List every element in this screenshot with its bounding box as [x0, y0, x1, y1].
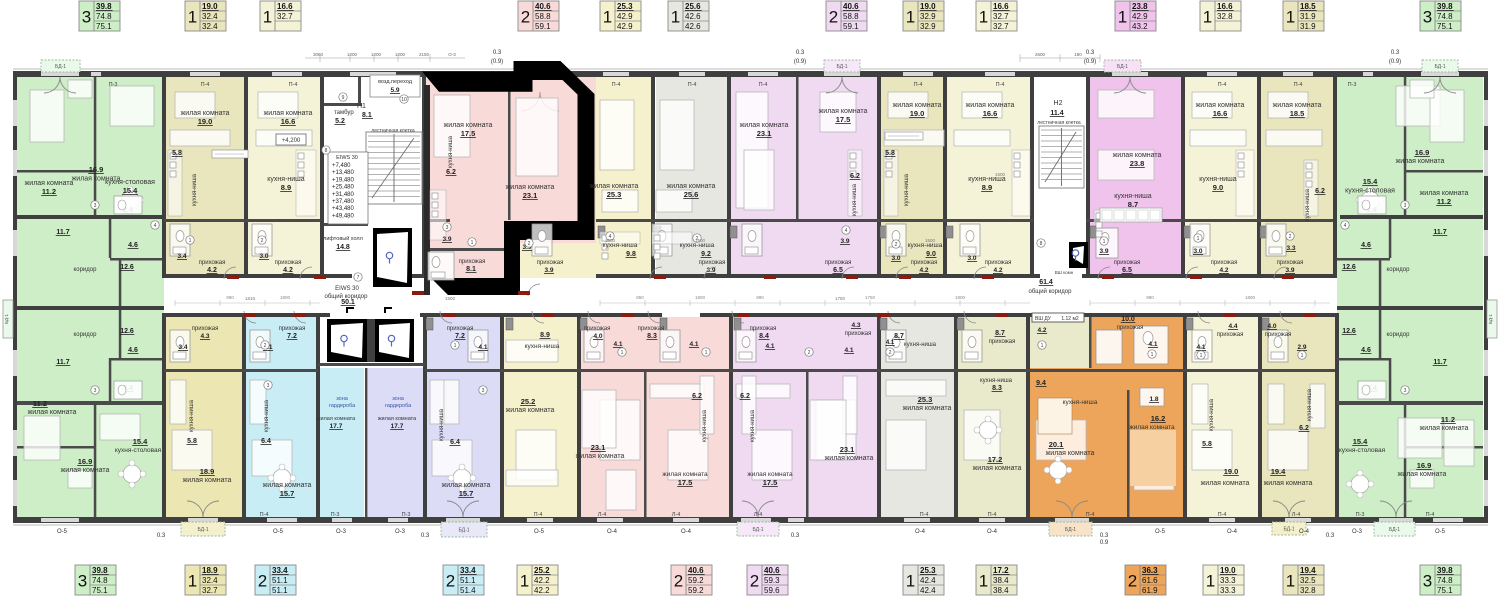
svg-text:19.0: 19.0 [1224, 467, 1239, 476]
svg-text:жилая комната: жилая комната [1420, 425, 1469, 432]
svg-text:0.3: 0.3 [796, 50, 805, 56]
svg-text:4.1: 4.1 [689, 341, 698, 348]
svg-text:прихожая: прихожая [911, 260, 938, 266]
svg-text:33.3: 33.3 [1220, 576, 1236, 585]
svg-text:прихожая: прихожая [1277, 260, 1304, 266]
svg-text:32.8: 32.8 [1217, 12, 1233, 21]
svg-text:Л-4: Л-4 [672, 512, 681, 518]
svg-text:8.9: 8.9 [982, 183, 992, 192]
svg-text:23.1: 23.1 [523, 191, 538, 200]
svg-text:3.0: 3.0 [891, 255, 900, 262]
svg-text:лестничная клетка: лестничная клетка [1037, 120, 1081, 126]
svg-text:59.2: 59.2 [688, 576, 704, 585]
svg-text:1800: 1800 [695, 295, 706, 300]
svg-text:жилая комната: жилая комната [667, 183, 716, 190]
svg-text:18.9: 18.9 [202, 566, 218, 575]
svg-text:прихожая: прихожая [989, 339, 1016, 345]
svg-text:П-4: П-4 [920, 512, 929, 518]
svg-text:16.9: 16.9 [1417, 461, 1432, 470]
svg-text:11.4: 11.4 [1050, 110, 1063, 117]
svg-text:6.4: 6.4 [450, 439, 460, 446]
svg-text:кухня-ниша: кухня-ниша [908, 242, 943, 249]
svg-text:8.3: 8.3 [647, 333, 657, 340]
svg-text:жилая комната: жилая комната [317, 416, 356, 422]
svg-text:11.7: 11.7 [1433, 359, 1446, 366]
svg-text:2: 2 [674, 572, 683, 591]
svg-text:8.1: 8.1 [466, 266, 476, 273]
svg-text:П-3: П-3 [402, 512, 411, 518]
svg-text:1750: 1750 [835, 296, 846, 301]
svg-text:ВШ ДУ: ВШ ДУ [1035, 316, 1052, 322]
svg-text:жилая комната: жилая комната [444, 122, 493, 129]
svg-text:О-3: О-3 [395, 529, 406, 535]
svg-text:жилая комната: жилая комната [819, 108, 868, 115]
svg-text:39.8: 39.8 [92, 566, 108, 575]
svg-text:2: 2 [528, 241, 531, 247]
svg-text:40.6: 40.6 [764, 566, 780, 575]
svg-text:жилая комната: жилая комната [966, 102, 1015, 109]
svg-text:общий коридор: общий коридор [1029, 288, 1073, 295]
svg-text:16.6: 16.6 [1213, 109, 1228, 118]
svg-text:1: 1 [979, 8, 988, 27]
svg-text:19.4: 19.4 [1300, 566, 1316, 575]
svg-text:0.3: 0.3 [157, 533, 166, 539]
svg-text:БД-1: БД-1 [458, 528, 469, 534]
svg-text:5.8: 5.8 [1202, 441, 1212, 448]
svg-text:кухня-ниша: кухня-ниша [603, 242, 638, 249]
svg-text:О-4: О-4 [681, 529, 692, 535]
svg-text:2: 2 [1289, 234, 1292, 240]
svg-text:0.3: 0.3 [1391, 50, 1400, 56]
svg-text:Л-4: Л-4 [754, 512, 763, 518]
svg-text:75.1: 75.1 [1437, 22, 1453, 31]
svg-text:0.3: 0.3 [493, 50, 502, 56]
svg-text:5.8: 5.8 [187, 438, 197, 445]
svg-text:1: 1 [621, 350, 624, 356]
svg-text:4.1: 4.1 [478, 344, 487, 351]
svg-text:БД-1: БД-1 [1283, 527, 1294, 533]
svg-text:П-3: П-3 [331, 512, 340, 518]
svg-text:42.9: 42.9 [1132, 12, 1148, 21]
svg-text:жилая комната: жилая комната [1398, 471, 1447, 478]
svg-text:8: 8 [1040, 241, 1043, 247]
svg-text:П-4: П-4 [260, 512, 269, 518]
svg-text:59.1: 59.1 [843, 22, 859, 31]
svg-text:П-4: П-4 [1086, 512, 1095, 518]
svg-text:15.7: 15.7 [280, 489, 295, 498]
svg-text:прихожая: прихожая [275, 260, 302, 266]
svg-text:лифтовый холл: лифтовый холл [323, 235, 363, 242]
svg-text:жилая комната: жилая комната [28, 409, 77, 416]
svg-text:2600: 2600 [1035, 52, 1046, 57]
svg-text:4.6: 4.6 [1361, 347, 1371, 354]
svg-text:23.1: 23.1 [840, 445, 855, 454]
svg-text:33.4: 33.4 [460, 566, 476, 575]
svg-text:жилая комната: жилая комната [442, 482, 491, 489]
svg-text:кухня-ниша: кухня-ниша [448, 135, 454, 168]
svg-text:кухня-ниша: кухня-ниша [192, 173, 198, 206]
svg-text:59.3: 59.3 [764, 576, 780, 585]
svg-text:16.6: 16.6 [277, 2, 293, 11]
svg-text:кухня-ниша: кухня-ниша [1305, 188, 1311, 221]
svg-text:4.2: 4.2 [919, 267, 928, 274]
svg-text:3: 3 [1423, 8, 1432, 27]
svg-text:25.6: 25.6 [685, 2, 701, 11]
svg-text:17.5: 17.5 [678, 478, 693, 487]
svg-text:10.0: 10.0 [1121, 316, 1135, 323]
svg-text:4: 4 [154, 223, 157, 229]
svg-text:3.0: 3.0 [967, 255, 976, 262]
svg-text:прихожая: прихожая [1217, 332, 1244, 338]
svg-text:3.9: 3.9 [1285, 267, 1294, 274]
svg-text:6.5: 6.5 [833, 267, 843, 274]
svg-text:1: 1 [454, 343, 457, 349]
svg-text:П-4: П-4 [688, 82, 697, 88]
svg-text:4.6: 4.6 [128, 347, 138, 354]
svg-text:75.1: 75.1 [92, 586, 108, 595]
svg-text:1800: 1800 [955, 295, 966, 300]
svg-text:прихожая: прихожая [1265, 332, 1292, 338]
svg-text:9.2: 9.2 [701, 251, 711, 258]
svg-text:БД-1: БД-1 [4, 314, 9, 324]
svg-text:зона: зона [336, 396, 349, 402]
svg-text:БД-1: БД-1 [1065, 527, 1076, 533]
svg-text:1: 1 [1041, 343, 1044, 349]
svg-text:12.6: 12.6 [1342, 328, 1356, 335]
svg-text:1: 1 [1286, 8, 1295, 27]
svg-text:П-4: П-4 [996, 82, 1005, 88]
svg-text:1200: 1200 [371, 52, 382, 57]
svg-text:кухня-ниша: кухня-ниша [702, 409, 708, 442]
svg-text:19.0: 19.0 [202, 2, 218, 11]
svg-text:10: 10 [401, 97, 407, 103]
svg-text:EIWS 30: EIWS 30 [336, 155, 358, 161]
svg-text:+49,480: +49,480 [332, 213, 355, 219]
svg-text:3: 3 [267, 383, 270, 389]
svg-text:75.1: 75.1 [1437, 586, 1453, 595]
svg-text:16.9: 16.9 [78, 457, 93, 466]
svg-text:4.1: 4.1 [613, 341, 622, 348]
svg-text:П-4: П-4 [988, 512, 997, 518]
svg-text:жилая комната: жилая комната [740, 122, 789, 129]
svg-text:58.8: 58.8 [843, 12, 859, 21]
svg-text:лестничная клетка: лестничная клетка [371, 128, 415, 134]
svg-text:кухня-ниша: кухня-ниша [980, 378, 1013, 384]
svg-text:74.8: 74.8 [92, 576, 108, 585]
svg-text:П-4: П-4 [1218, 82, 1227, 88]
svg-text:1: 1 [263, 8, 272, 27]
svg-text:П-4: П-4 [1426, 512, 1435, 518]
svg-text:+7,480: +7,480 [332, 163, 351, 169]
svg-text:3.9: 3.9 [1099, 248, 1108, 255]
svg-text:19.0: 19.0 [198, 117, 213, 126]
svg-text:1: 1 [1206, 572, 1215, 591]
svg-text:4.2: 4.2 [283, 267, 293, 274]
svg-text:жилая комната: жилая комната [1273, 102, 1322, 109]
svg-text:19.0: 19.0 [920, 2, 936, 11]
svg-text:17.5: 17.5 [763, 478, 778, 487]
svg-text:32.4: 32.4 [202, 576, 218, 585]
svg-text:тамбур: тамбур [334, 110, 354, 116]
svg-text:16.9: 16.9 [1415, 148, 1430, 157]
svg-text:6.2: 6.2 [740, 393, 750, 400]
svg-text:3: 3 [482, 388, 485, 394]
svg-text:БД-1: БД-1 [1389, 527, 1400, 533]
svg-text:11.2: 11.2 [1437, 197, 1451, 206]
svg-text:4.1: 4.1 [1148, 341, 1157, 348]
svg-text:1: 1 [1203, 8, 1212, 27]
svg-text:50.1: 50.1 [341, 299, 355, 306]
svg-text:59.2: 59.2 [688, 586, 704, 595]
svg-text:П-4: П-4 [612, 82, 621, 88]
svg-text:25.2: 25.2 [534, 566, 550, 575]
svg-text:жилая комната: жилая комната [825, 455, 874, 462]
svg-text:кухня-ниша: кухня-ниша [1307, 388, 1313, 421]
svg-text:О-3: О-3 [448, 52, 456, 57]
svg-text:51.1: 51.1 [460, 576, 476, 585]
svg-text:2: 2 [258, 572, 267, 591]
svg-text:3.4: 3.4 [178, 344, 187, 351]
svg-text:кухня-ниша: кухня-ниша [525, 343, 560, 350]
svg-text:П-4: П-4 [201, 82, 210, 88]
svg-text:1: 1 [705, 350, 708, 356]
svg-text:17.5: 17.5 [461, 129, 476, 138]
svg-text:51.4: 51.4 [460, 586, 476, 595]
svg-text:О-3: О-3 [1352, 529, 1363, 535]
svg-text:прихожая: прихожая [584, 326, 611, 332]
svg-text:18.5: 18.5 [1290, 109, 1305, 118]
svg-text:кухня-столовая: кухня-столовая [115, 447, 162, 454]
svg-text:возд.переход: возд.переход [378, 79, 413, 85]
svg-text:40.6: 40.6 [688, 566, 704, 575]
svg-text:БД-1: БД-1 [752, 527, 763, 533]
svg-text:32.7: 32.7 [277, 12, 293, 21]
svg-text:1: 1 [1151, 352, 1154, 358]
svg-text:жилая комната: жилая комната [264, 110, 313, 117]
svg-text:4: 4 [845, 228, 848, 234]
svg-text:зона: зона [392, 396, 405, 402]
svg-text:прихожая: прихожая [1114, 260, 1141, 266]
svg-text:+4,200: +4,200 [282, 138, 301, 144]
svg-text:4.0: 4.0 [593, 333, 602, 340]
svg-text:990: 990 [226, 295, 234, 300]
svg-text:жилая комната: жилая комната [1201, 480, 1250, 487]
svg-text:6.2: 6.2 [1299, 425, 1309, 432]
svg-text:жилая комната: жилая комната [662, 471, 708, 478]
svg-text:25.2: 25.2 [521, 397, 536, 406]
svg-text:23.8: 23.8 [1132, 2, 1148, 11]
svg-text:990: 990 [756, 295, 764, 300]
svg-text:16.9: 16.9 [89, 165, 104, 174]
svg-text:П-3: П-3 [1348, 82, 1357, 88]
svg-text:59.1: 59.1 [535, 22, 551, 31]
svg-text:4.3: 4.3 [200, 333, 209, 340]
svg-text:8.1: 8.1 [362, 112, 372, 119]
svg-text:3: 3 [78, 572, 87, 591]
svg-text:О-5: О-5 [534, 529, 545, 535]
svg-text:40.6: 40.6 [843, 2, 859, 11]
svg-text:П-4: П-4 [1294, 82, 1303, 88]
svg-text:коридор: коридор [1387, 332, 1411, 338]
svg-text:42.9: 42.9 [617, 12, 633, 21]
svg-text:17.7: 17.7 [330, 423, 343, 430]
svg-text:1800: 1800 [280, 295, 291, 300]
svg-text:25.3: 25.3 [607, 190, 622, 199]
svg-text:прихожая: прихожая [750, 326, 777, 332]
svg-text:42.2: 42.2 [534, 576, 550, 585]
svg-text:42.4: 42.4 [920, 586, 936, 595]
svg-text:(0.9): (0.9) [1084, 59, 1096, 65]
svg-text:1: 1 [906, 8, 915, 27]
svg-text:11.2: 11.2 [33, 399, 47, 408]
svg-text:П-3: П-3 [1356, 512, 1365, 518]
svg-text:(0.9): (0.9) [794, 59, 806, 65]
svg-text:51.1: 51.1 [272, 576, 288, 585]
svg-text:6.4: 6.4 [261, 438, 271, 445]
svg-text:2: 2 [895, 242, 898, 248]
svg-text:23.1: 23.1 [757, 129, 772, 138]
svg-text:жилая комната: жилая комната [183, 477, 232, 484]
svg-text:П-4: П-4 [914, 82, 923, 88]
svg-text:61.6: 61.6 [1142, 576, 1158, 585]
svg-text:6.5: 6.5 [1122, 267, 1132, 274]
svg-text:16.6: 16.6 [993, 2, 1009, 11]
svg-text:32.7: 32.7 [202, 586, 218, 595]
svg-text:3.0: 3.0 [1193, 248, 1202, 255]
svg-text:жилая комната: жилая комната [973, 465, 1022, 472]
svg-text:жилая комната: жилая комната [1420, 190, 1469, 197]
svg-text:О-5: О-5 [273, 529, 284, 535]
svg-text:17.7: 17.7 [391, 423, 404, 430]
svg-text:4: 4 [1344, 223, 1347, 229]
svg-text:74.8: 74.8 [1437, 12, 1453, 21]
svg-text:2: 2 [261, 238, 264, 244]
svg-text:1500: 1500 [995, 172, 1006, 177]
svg-text:жилая комната: жилая комната [378, 416, 417, 422]
svg-text:П-3: П-3 [109, 82, 118, 88]
svg-text:+43,480: +43,480 [332, 206, 355, 212]
svg-text:1.12 м2: 1.12 м2 [1061, 316, 1079, 322]
svg-text:(0.9): (0.9) [1389, 59, 1401, 65]
svg-text:(0.9): (0.9) [491, 59, 503, 65]
svg-text:3: 3 [82, 8, 91, 27]
svg-text:жилая комната: жилая комната [1113, 152, 1162, 159]
svg-text:О-4: О-4 [607, 529, 618, 535]
svg-text:прихожая: прихожая [1117, 325, 1144, 331]
svg-text:+37,480: +37,480 [332, 199, 355, 205]
svg-text:Л-4: Л-4 [598, 512, 607, 518]
svg-text:42.9: 42.9 [617, 22, 633, 31]
svg-text:кухня-ниша: кухня-ниша [750, 409, 756, 442]
svg-text:жилая комната: жилая комната [903, 405, 952, 412]
svg-text:кухня-ниша: кухня-ниша [189, 399, 195, 432]
svg-text:4.1: 4.1 [1196, 344, 1205, 351]
svg-text:33.3: 33.3 [1220, 586, 1236, 595]
svg-text:59.6: 59.6 [764, 586, 780, 595]
svg-text:3: 3 [1423, 572, 1432, 591]
svg-text:кухня-ниша: кухня-ниша [439, 408, 445, 441]
svg-text:2: 2 [829, 8, 838, 27]
svg-text:19.0: 19.0 [910, 109, 925, 118]
svg-text:жилая комната: жилая комната [1046, 450, 1095, 457]
svg-text:1: 1 [188, 572, 197, 591]
svg-text:0.9: 0.9 [1100, 540, 1109, 546]
svg-text:БД-1: БД-1 [197, 527, 208, 533]
svg-text:16.2: 16.2 [1151, 414, 1166, 423]
svg-text:9.8: 9.8 [626, 251, 636, 258]
svg-text:31.9: 31.9 [1300, 22, 1316, 31]
svg-text:5.2: 5.2 [335, 118, 345, 125]
svg-text:2: 2 [808, 350, 811, 356]
svg-text:12.6: 12.6 [1342, 264, 1356, 271]
svg-text:3: 3 [94, 388, 97, 394]
svg-text:3.3: 3.3 [1286, 245, 1295, 252]
svg-text:П-4: П-4 [759, 82, 768, 88]
svg-text:14.8: 14.8 [336, 244, 350, 251]
svg-text:11.7: 11.7 [56, 359, 69, 366]
svg-text:О-4: О-4 [987, 529, 998, 535]
svg-text:прихожая: прихожая [537, 260, 564, 266]
svg-text:0.3: 0.3 [1086, 50, 1095, 56]
svg-text:6.2: 6.2 [850, 173, 860, 180]
svg-text:4.2: 4.2 [1219, 267, 1228, 274]
svg-text:42.6: 42.6 [685, 12, 701, 21]
svg-text:жилая комната: жилая комната [1196, 102, 1245, 109]
svg-text:4.4: 4.4 [1228, 323, 1237, 330]
svg-text:1: 1 [1118, 8, 1127, 27]
svg-text:15.4: 15.4 [1353, 437, 1368, 446]
svg-text:жилая комната: жилая комната [506, 184, 555, 191]
svg-text:31.9: 31.9 [1300, 12, 1316, 21]
svg-text:прихожая: прихожая [825, 260, 852, 266]
svg-text:3.9: 3.9 [442, 236, 451, 243]
svg-text:1: 1 [1200, 353, 1203, 359]
svg-text:32.4: 32.4 [202, 12, 218, 21]
svg-text:43.2: 43.2 [1132, 22, 1148, 31]
svg-text:кухня-ниша: кухня-ниша [904, 342, 937, 348]
svg-text:ВШ комн: ВШ комн [1055, 270, 1074, 275]
svg-text:жилая комната: жилая комната [1129, 424, 1175, 431]
svg-text:БД-1: БД-1 [836, 64, 847, 70]
svg-text:4.6: 4.6 [128, 242, 138, 249]
svg-text:17.2: 17.2 [988, 455, 1003, 464]
svg-text:23.1: 23.1 [591, 443, 606, 452]
svg-text:32.7: 32.7 [993, 12, 1009, 21]
svg-text:1: 1 [1286, 572, 1295, 591]
svg-text:25.3: 25.3 [918, 395, 933, 404]
svg-text:25.3: 25.3 [920, 566, 936, 575]
svg-text:П-4: П-4 [534, 512, 543, 518]
svg-text:1: 1 [520, 572, 529, 591]
svg-text:2: 2 [889, 350, 892, 356]
svg-text:1800: 1800 [1245, 295, 1256, 300]
svg-text:EIWS 30: EIWS 30 [335, 286, 359, 292]
svg-text:1: 1 [906, 572, 915, 591]
svg-text:Л-4: Л-4 [1292, 512, 1301, 518]
svg-text:прихожая: прихожая [699, 260, 726, 266]
svg-text:О-5: О-5 [1155, 529, 1166, 535]
svg-text:1: 1 [1197, 236, 1200, 242]
svg-text:1.8: 1.8 [1149, 396, 1158, 403]
svg-text:прихожая: прихожая [985, 260, 1012, 266]
svg-text:4.2: 4.2 [993, 267, 1002, 274]
svg-text:прихожая: прихожая [1211, 260, 1238, 266]
svg-text:25.3: 25.3 [617, 2, 633, 11]
svg-text:H1: H1 [357, 103, 366, 110]
svg-text:кухня-ниша: кухня-ниша [264, 399, 270, 432]
svg-text:11.2: 11.2 [1441, 415, 1455, 424]
svg-text:850: 850 [636, 295, 644, 300]
